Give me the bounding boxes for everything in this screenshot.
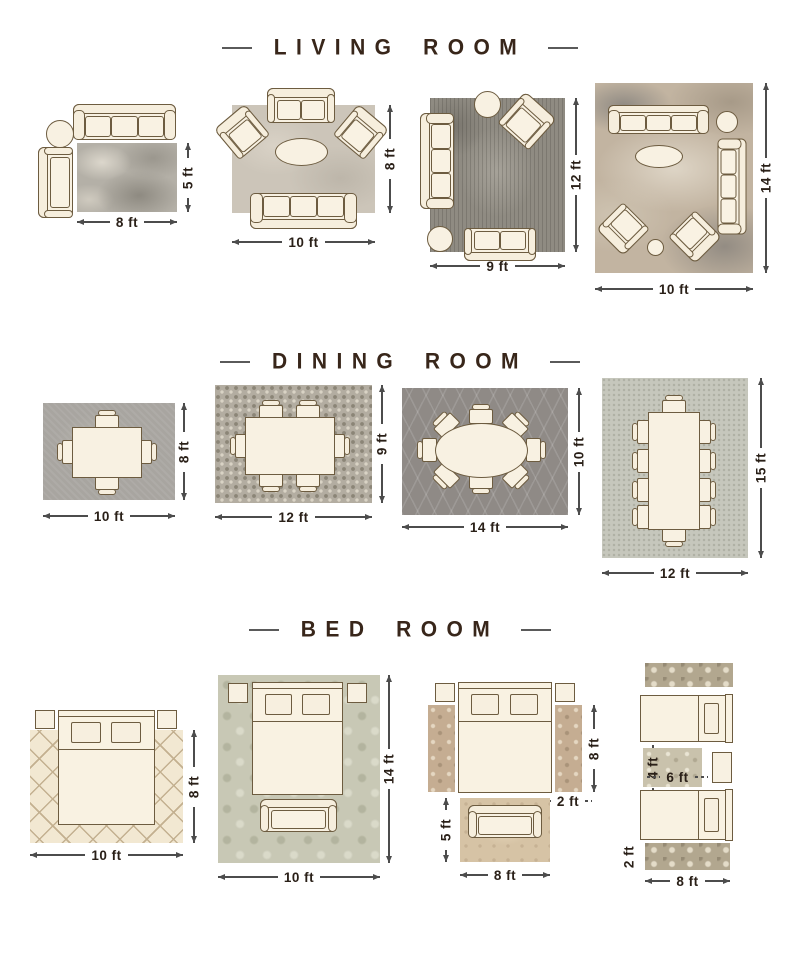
armrest (528, 228, 536, 255)
armrest (250, 193, 263, 223)
dining-table-oval (435, 423, 528, 478)
cushion (290, 196, 317, 217)
dimension-line (381, 385, 382, 424)
dim-height: 8 ft (176, 403, 192, 500)
dim-width: 10 ft (218, 869, 380, 885)
dimension-line (575, 98, 576, 155)
dimension-line (575, 195, 576, 252)
dimension-label: 12 ft (654, 566, 696, 581)
dimension-line (460, 874, 488, 875)
armrest (426, 113, 454, 124)
pillow (704, 798, 719, 832)
cushion (317, 196, 344, 217)
nightstand (555, 683, 575, 702)
armrest (468, 811, 477, 838)
armrest (718, 139, 742, 150)
headboard (252, 682, 343, 689)
title-dash (550, 361, 580, 363)
dim-width: 10 ft (232, 234, 375, 250)
dining-chair (259, 472, 283, 492)
cushion (646, 115, 672, 132)
dimension-label: 5 ft (180, 158, 196, 198)
dimension-label: 10 ft (571, 432, 587, 472)
dimension-label: 8 ft (670, 874, 704, 889)
dim-runner-length: 8 ft (645, 873, 730, 889)
dimension-line (215, 516, 272, 517)
headboard (725, 694, 733, 743)
dimension-label: 15 ft (753, 448, 769, 488)
dim-runner-width: 2 ft (544, 793, 592, 809)
dim-height: 10 ft (571, 388, 587, 515)
dim-accent-rug-width: 6 ft (647, 769, 708, 785)
armrest (344, 193, 357, 223)
cushion (263, 196, 290, 217)
armrest (426, 198, 454, 209)
dimension-line (193, 730, 194, 767)
dining-chair (417, 438, 437, 462)
title-dash (548, 47, 578, 49)
cushion (431, 124, 451, 148)
dimension-line (593, 705, 594, 729)
armrest (533, 811, 542, 838)
dimension-line (77, 221, 110, 222)
rug-8x5 (77, 143, 177, 212)
dim-height: 9 ft (374, 385, 390, 503)
dining-chair (662, 527, 686, 547)
armrest (44, 210, 73, 218)
cushion (671, 115, 697, 132)
bed-twin (640, 790, 733, 840)
backrest (73, 104, 176, 114)
loveseat (464, 228, 536, 261)
pillow (471, 694, 500, 715)
armrest (608, 110, 620, 134)
nightstand (347, 683, 367, 703)
dimension-label: 2 ft (551, 794, 585, 809)
runner-rug (645, 663, 733, 687)
dining-table (245, 417, 335, 475)
dimension-label: 8 ft (186, 767, 202, 807)
dimension-label: 2 ft (621, 840, 637, 874)
dimension-label: 10 ft (278, 870, 320, 885)
dimension-label: 10 ft (85, 848, 127, 863)
dining-chair (469, 404, 493, 424)
dimension-line (445, 850, 446, 862)
dim-height: 12 ft (568, 98, 584, 252)
dimension-line (578, 472, 579, 516)
dimension-label: 12 ft (568, 155, 584, 195)
dim-width: 10 ft (43, 508, 175, 524)
dimension-line (430, 265, 480, 266)
nightstand (712, 752, 732, 783)
dim-runner-width: 2 ft (621, 840, 637, 874)
headboard (725, 789, 733, 841)
dimension-label: 10 ft (653, 282, 695, 297)
dimension-label: 9 ft (374, 424, 390, 464)
dim-height: 8 ft (186, 730, 202, 843)
armrest (718, 223, 742, 234)
armrest (328, 805, 337, 832)
cushion (50, 157, 70, 208)
dim-width: 14 ft (402, 519, 568, 535)
dining-table (72, 427, 142, 478)
headboard (58, 710, 155, 717)
cushion (431, 149, 451, 173)
dining-chair (526, 438, 546, 462)
dimension-line (128, 854, 183, 855)
dimension-label: 8 ft (110, 215, 144, 230)
backrest (420, 113, 430, 209)
dimension-line (602, 572, 654, 573)
dimension-label: 10 ft (88, 509, 130, 524)
dim-height: 8 ft (382, 105, 398, 213)
dimension-line (187, 143, 188, 158)
dim-height: 5 ft (438, 798, 454, 862)
dim-width: 12 ft (215, 509, 372, 525)
dimension-line (130, 515, 175, 516)
backrest (468, 805, 542, 814)
runner-rug (645, 843, 730, 870)
dim-runner-length: 8 ft (586, 705, 602, 792)
cushion (271, 810, 327, 829)
cushion (277, 100, 301, 120)
cushion (301, 100, 325, 120)
sofa-3-seat (420, 113, 454, 209)
blanket-fold (252, 721, 343, 722)
blanket-fold (698, 790, 699, 840)
cushion (431, 173, 451, 197)
section-title-dining-room: DINING ROOM (0, 350, 800, 374)
section-title-text: BED ROOM (301, 617, 499, 642)
ottoman-round (647, 239, 664, 256)
backrest (38, 147, 48, 218)
coffee-table-oval (275, 138, 328, 166)
cushion (620, 115, 646, 132)
runner-rug (555, 705, 582, 792)
armrest (73, 110, 85, 140)
runner-rug (428, 705, 455, 792)
armrest (44, 147, 73, 155)
cushion (720, 174, 737, 198)
bed-double (58, 710, 155, 825)
bench (260, 799, 337, 832)
dimension-line (389, 179, 390, 213)
dimension-line (585, 800, 592, 801)
section-title-living-room: LIVING ROOM (0, 36, 800, 60)
nightstand (35, 710, 55, 729)
blanket-fold (58, 749, 155, 750)
dimension-line (325, 241, 375, 242)
dim-height: 14 ft (758, 83, 774, 273)
dimension-label: 8 ft (488, 868, 522, 883)
dimension-line (645, 880, 670, 881)
dimension-line (43, 515, 88, 516)
pillow (510, 694, 539, 715)
dim-width: 8 ft (460, 867, 550, 883)
dimension-label: 8 ft (382, 139, 398, 179)
cushion (720, 199, 737, 223)
loveseat (468, 805, 542, 838)
pillow (704, 703, 719, 735)
dimension-line (705, 880, 730, 881)
dim-height: 15 ft (753, 378, 769, 558)
pillow (265, 694, 293, 715)
nightstand (228, 683, 248, 703)
sofa-3-seat (73, 104, 176, 140)
pillow (111, 722, 140, 743)
dimension-line (593, 769, 594, 793)
sofa-3-seat (250, 193, 357, 229)
backrest (267, 88, 335, 98)
dimension-line (695, 288, 753, 289)
backrest (250, 219, 357, 229)
armrest (260, 805, 269, 832)
dim-height: 14 ft (381, 675, 397, 863)
blanket-fold (698, 695, 699, 742)
dimension-line (187, 198, 188, 213)
dimension-line (232, 241, 282, 242)
section-title-text: LIVING ROOM (274, 35, 526, 60)
dimension-line (647, 776, 660, 777)
dimension-line (381, 464, 382, 503)
nightstand (157, 710, 177, 729)
title-dash (222, 47, 252, 49)
dimension-line (144, 221, 177, 222)
dimension-line (695, 776, 708, 777)
side-table-round (474, 91, 501, 118)
pillow (302, 694, 330, 715)
backrest (608, 105, 709, 113)
dining-table (648, 412, 700, 530)
backrest (738, 139, 746, 235)
dimension-line (30, 854, 85, 855)
dimension-line (320, 876, 380, 877)
dimension-label: 6 ft (660, 770, 694, 785)
dimension-line (315, 516, 372, 517)
dimension-line (595, 288, 653, 289)
armrest (697, 110, 709, 134)
ottoman-round (716, 111, 738, 133)
title-dash (521, 629, 551, 631)
dimension-line (522, 874, 550, 875)
dimension-label: 5 ft (438, 810, 454, 850)
dimension-line (183, 403, 184, 432)
dimension-line (389, 105, 390, 139)
sofa-3-seat (608, 105, 709, 134)
dimension-line (193, 807, 194, 844)
pillow (71, 722, 100, 743)
title-dash (249, 629, 279, 631)
dim-width: 9 ft (430, 258, 565, 274)
armrest (267, 94, 275, 123)
loveseat (267, 88, 335, 123)
dimension-label: 14 ft (758, 158, 774, 198)
dim-height: 5 ft (180, 143, 196, 212)
bed-twin (640, 695, 733, 742)
dimension-line (760, 378, 761, 448)
dimension-line (445, 798, 446, 810)
dim-width: 10 ft (595, 281, 753, 297)
coffee-table-oval (635, 145, 683, 168)
cushion (720, 150, 737, 174)
dimension-line (765, 198, 766, 273)
cushion (478, 816, 531, 835)
cushion (474, 231, 500, 250)
dining-chair (296, 472, 320, 492)
dimension-label: 8 ft (586, 729, 602, 769)
dimension-line (388, 789, 389, 863)
dimension-line (696, 572, 748, 573)
bed-double (252, 682, 343, 795)
dimension-label: 14 ft (381, 749, 397, 789)
armrest (327, 94, 335, 123)
bed-double (458, 682, 552, 793)
headboard (458, 682, 552, 689)
dining-chair (95, 475, 119, 495)
dimension-line (218, 876, 278, 877)
dimension-line (183, 472, 184, 501)
section-title-text: DINING ROOM (272, 349, 528, 374)
armrest (464, 228, 472, 255)
dimension-label: 9 ft (480, 259, 514, 274)
title-dash (220, 361, 250, 363)
dimension-label: 8 ft (176, 432, 192, 472)
dimension-label: 12 ft (272, 510, 314, 525)
ottoman-round (427, 226, 453, 252)
cushion (111, 116, 137, 137)
backrest (260, 799, 337, 808)
rug-size-guide-infographic: LIVING ROOM 8 ft 5 ft (0, 0, 800, 978)
side-table-round (46, 120, 74, 148)
chaise-lounge (38, 147, 73, 218)
cushion (138, 116, 164, 137)
dimension-label: 14 ft (464, 520, 506, 535)
blanket-fold (458, 721, 552, 722)
dimension-line (578, 388, 579, 432)
sofa-3-seat (718, 139, 747, 235)
dim-width: 10 ft (30, 847, 183, 863)
nightstand (435, 683, 455, 702)
section-title-bed-room: BED ROOM (0, 618, 800, 642)
dim-width: 8 ft (77, 214, 177, 230)
dimension-line (760, 488, 761, 558)
dimension-label: 10 ft (282, 235, 324, 250)
dimension-line (515, 265, 565, 266)
dimension-line (402, 526, 464, 527)
cushion (500, 231, 526, 250)
dimension-line (765, 83, 766, 158)
dimension-line (388, 675, 389, 749)
armrest (164, 110, 176, 140)
dim-width: 12 ft (602, 565, 748, 581)
cushion (85, 116, 111, 137)
dimension-line (506, 526, 568, 527)
